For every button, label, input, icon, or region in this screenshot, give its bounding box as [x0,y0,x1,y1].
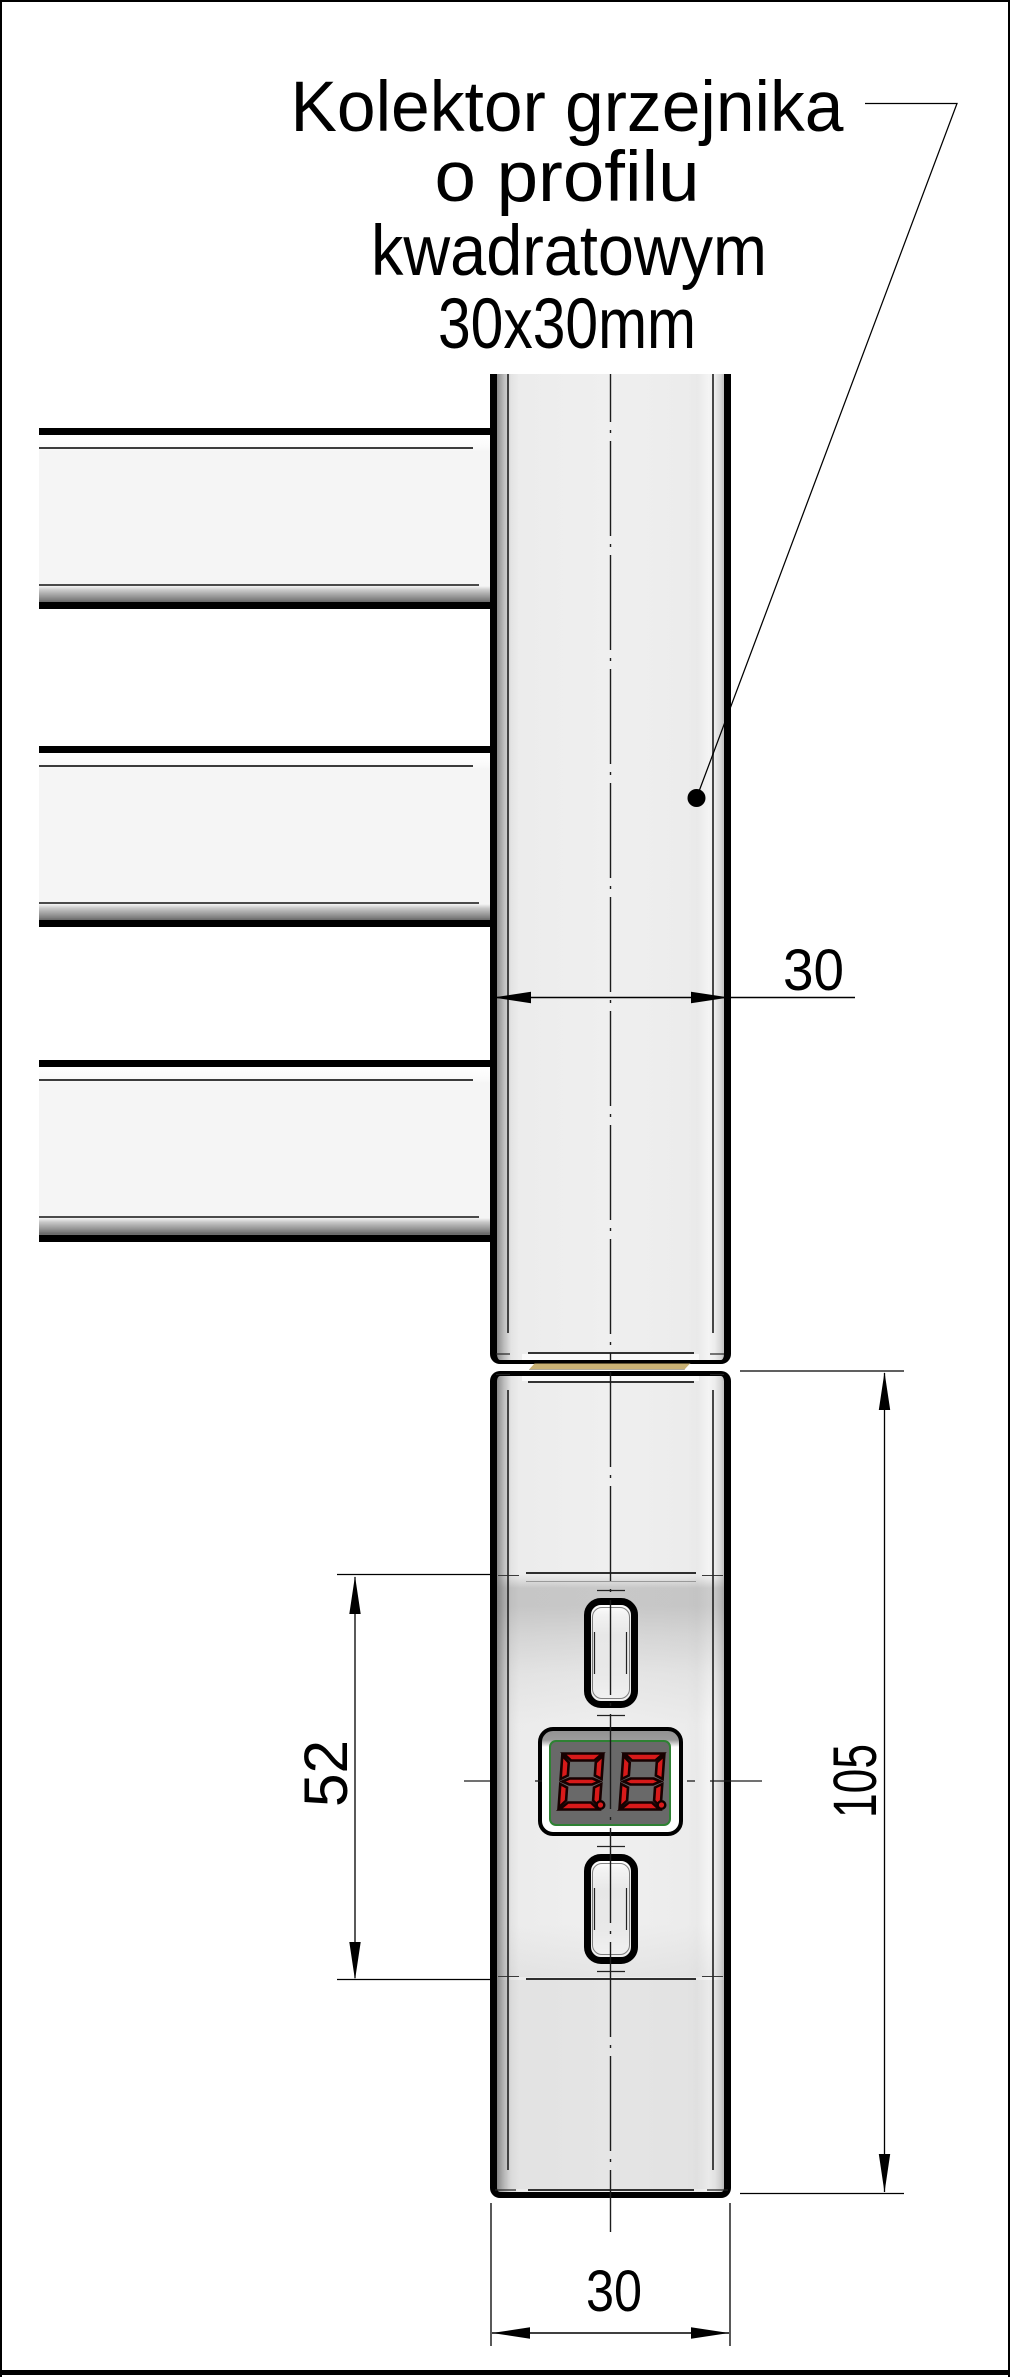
svg-text:30: 30 [783,938,844,1003]
svg-text:Kolektor grzejnika: Kolektor grzejnika [291,68,845,147]
svg-text:30: 30 [586,2259,642,2324]
svg-text:105: 105 [821,1744,889,1818]
svg-text:kwadratowym: kwadratowym [371,212,767,291]
svg-text:30x30mm: 30x30mm [438,285,696,364]
svg-text:52: 52 [292,1740,360,1807]
svg-text:o profilu: o profilu [435,138,700,217]
